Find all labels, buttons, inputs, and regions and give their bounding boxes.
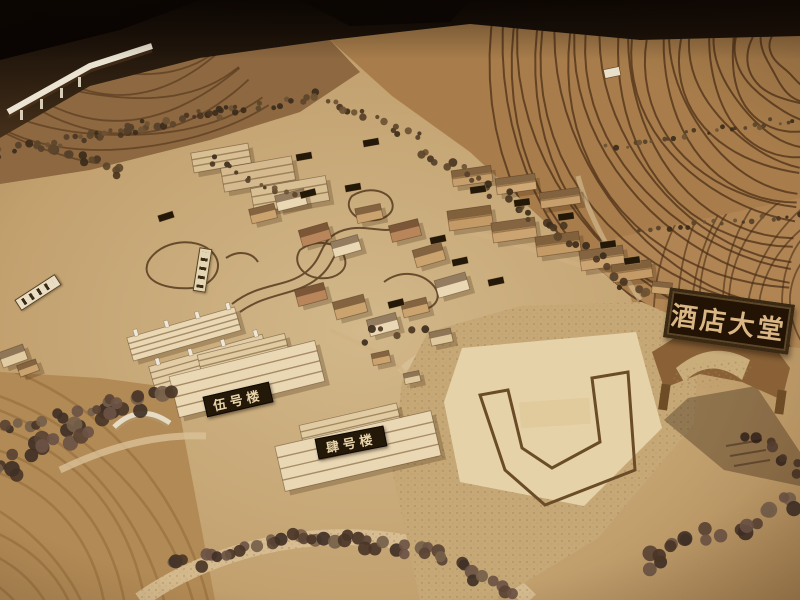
- model-photograph: 酒店大堂 伍号楼 肆号楼: [0, 0, 800, 600]
- hotel-lobby-sign-text: 酒店大堂: [669, 295, 789, 348]
- plaque-marks: [196, 252, 208, 288]
